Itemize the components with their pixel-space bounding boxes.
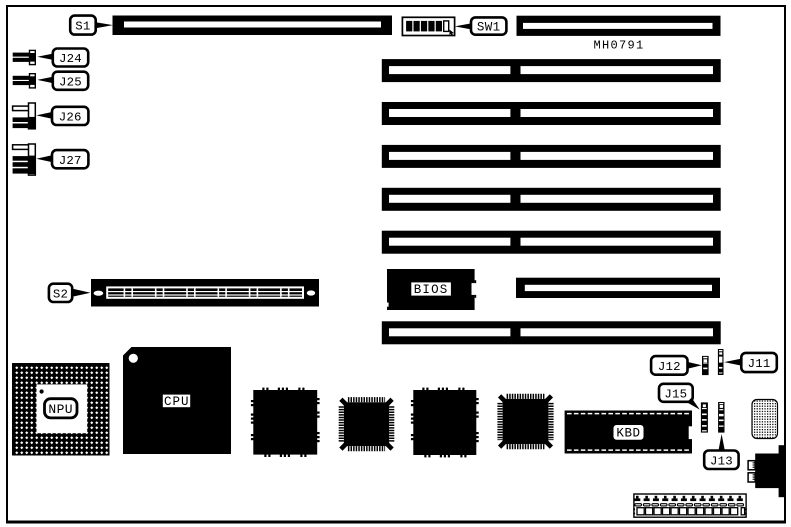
svg-text:J24: J24: [59, 52, 82, 66]
svg-text:J13: J13: [710, 454, 733, 468]
svg-text:CPU: CPU: [164, 395, 190, 409]
svg-text:KBD: KBD: [616, 427, 640, 441]
svg-text:NPU: NPU: [48, 402, 73, 417]
svg-text:J15: J15: [664, 387, 687, 401]
svg-text:SW1: SW1: [477, 21, 501, 35]
svg-text:S1: S1: [75, 20, 90, 34]
svg-text:J12: J12: [658, 360, 681, 374]
svg-text:J26: J26: [59, 111, 82, 125]
svg-text:J27: J27: [59, 154, 82, 168]
svg-text:S2: S2: [53, 287, 68, 301]
svg-text:J25: J25: [59, 75, 82, 89]
svg-text:BIOS: BIOS: [414, 283, 449, 297]
svg-text:J11: J11: [748, 357, 771, 371]
svg-text:MH0791: MH0791: [594, 38, 645, 52]
